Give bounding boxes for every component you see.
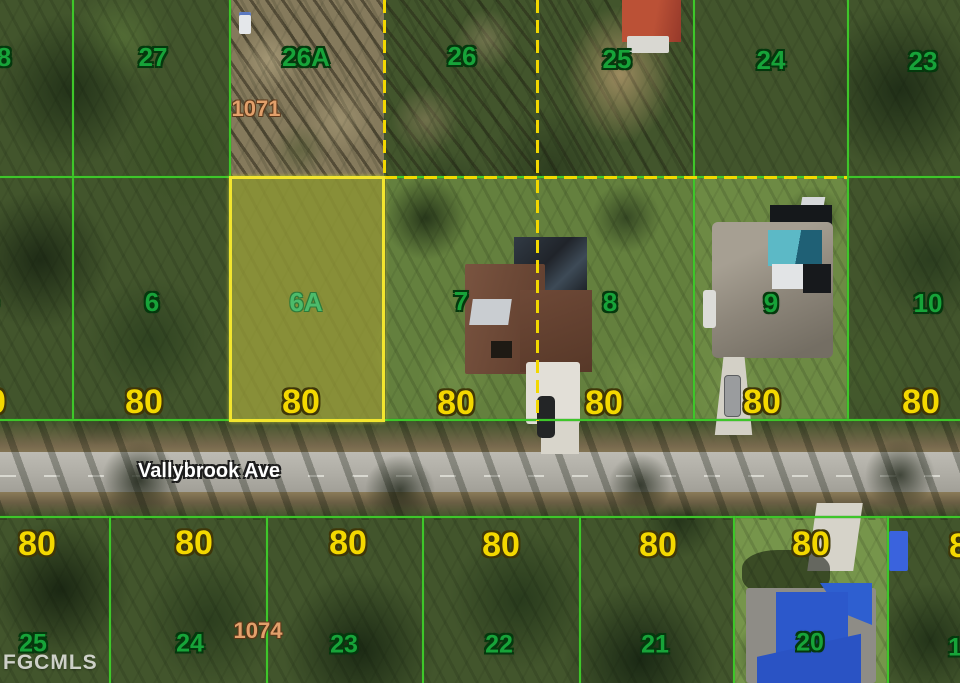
house-a-car (537, 396, 555, 438)
lot-number-27: 27 (139, 44, 168, 70)
dimension-80-mid-3: 80 (437, 386, 475, 420)
aerial-parcel-map[interactable]: 8 27 26A 26 25 24 23 1071 5 6 6A 7 8 9 1… (0, 0, 960, 683)
lot-line-vertical-7 (422, 516, 424, 683)
lot-number-6: 6 (145, 289, 159, 315)
house-b-car (724, 375, 741, 417)
lot-number-24-bottom: 24 (176, 632, 204, 657)
red-structure-shed (627, 36, 669, 53)
lot-number-20: 20 (796, 631, 824, 656)
house-b-rv (703, 290, 716, 328)
lot-number-26: 26 (448, 43, 477, 69)
dimension-80-bot-5: 80 (792, 527, 830, 561)
house-a-courtyard (491, 341, 512, 358)
white-trailer (239, 12, 251, 34)
lot-line-vertical-6 (266, 516, 268, 683)
dimension-80-bot-3: 80 (482, 528, 520, 562)
dimension-80-mid-1: 80 (125, 385, 163, 419)
dimension-80-mid-5: 80 (743, 385, 781, 419)
lot-number-25-top: 25 (603, 46, 632, 72)
dimension-80-bot-0: 80 (18, 527, 56, 561)
lot-number-19-partial: 19 (948, 636, 960, 661)
dimension-80-mid-6: 80 (902, 385, 940, 419)
house-b-pool (768, 230, 822, 266)
lot-number-26a: 26A (282, 44, 330, 70)
boundary-dashed-vertical-1 (383, 0, 386, 177)
lot-number-23-top: 23 (909, 48, 938, 74)
dimension-80-bot-6-partial: 80 (949, 529, 960, 563)
lot-number-23-bottom: 23 (330, 633, 358, 658)
lot-line-vertical-8 (579, 516, 581, 683)
lot-number-6a: 6A (289, 289, 322, 315)
lot-number-10: 10 (914, 290, 943, 316)
boundary-dashed-horizontal (384, 176, 847, 179)
dimension-80-mid-4: 80 (585, 386, 623, 420)
lot-line-vertical-10 (887, 516, 889, 683)
lot-line-vertical-5 (109, 516, 111, 683)
lot-line-vertical-1 (72, 0, 74, 421)
dimension-80-bot-2: 80 (329, 526, 367, 560)
street-name-label: Vallybrook Ave (138, 461, 280, 481)
lot-number-8: 8 (603, 289, 617, 315)
house-b-dark-panel (803, 264, 831, 293)
lot-number-7: 7 (454, 288, 468, 314)
dimension-80-bot-4: 80 (639, 528, 677, 562)
parcel-id-1071: 1071 (232, 98, 281, 120)
lot-number-28-partial: 8 (0, 44, 11, 70)
dimension-80-bot-1: 80 (175, 526, 213, 560)
house-a-shed-roof (469, 299, 512, 325)
lot-line-horizontal-3 (0, 516, 960, 518)
lot-number-24-top: 24 (757, 47, 786, 73)
lot-line-vertical-4 (847, 0, 849, 421)
house-b-lanai-roof (772, 264, 803, 289)
house-a-roof-wing (520, 290, 592, 372)
parcel-id-1074: 1074 (234, 620, 283, 642)
dimension-80-mid-2: 80 (282, 385, 320, 419)
lot-number-21: 21 (641, 633, 669, 658)
lot-number-9: 9 (764, 290, 778, 316)
lot-line-vertical-3 (693, 0, 695, 421)
mls-watermark: FGCMLS (3, 652, 98, 673)
house-c-blue-boat (889, 531, 908, 571)
dimension-80-mid-0-partial: 80 (0, 385, 6, 419)
lot-number-22: 22 (485, 633, 513, 658)
lot-line-vertical-9 (733, 516, 735, 683)
boundary-dashed-vertical-2 (536, 0, 539, 421)
